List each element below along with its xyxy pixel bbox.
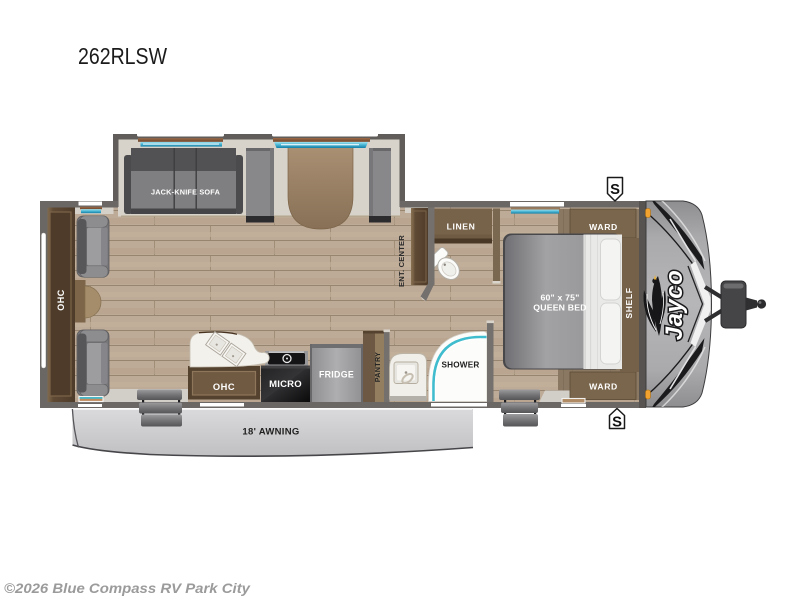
- svg-text:JACK-KNIFE SOFA: JACK-KNIFE SOFA: [151, 188, 221, 197]
- svg-text:WARD: WARD: [589, 382, 618, 392]
- svg-text:FRIDGE: FRIDGE: [319, 370, 354, 380]
- svg-text:©2026 Blue Compass RV Park Cit: ©2026 Blue Compass RV Park City: [4, 581, 251, 596]
- svg-text:LINEN: LINEN: [447, 222, 476, 232]
- svg-text:OHC: OHC: [56, 289, 66, 311]
- svg-text:18' AWNING: 18' AWNING: [242, 427, 299, 438]
- svg-text:S: S: [610, 182, 620, 198]
- svg-text:ENT. CENTER: ENT. CENTER: [397, 235, 406, 287]
- svg-text:SHOWER: SHOWER: [441, 361, 479, 370]
- svg-text:60" x 75": 60" x 75": [540, 293, 579, 303]
- svg-text:OHC: OHC: [213, 382, 235, 392]
- svg-text:Jayco: Jayco: [661, 270, 688, 341]
- svg-text:QUEEN BED: QUEEN BED: [533, 303, 586, 313]
- svg-text:MICRO: MICRO: [269, 379, 302, 390]
- svg-text:PANTRY: PANTRY: [373, 352, 382, 383]
- svg-text:S: S: [612, 415, 622, 431]
- svg-text:SHELF: SHELF: [624, 287, 634, 318]
- svg-text:262RLSW: 262RLSW: [78, 43, 168, 69]
- svg-text:WARD: WARD: [589, 222, 618, 232]
